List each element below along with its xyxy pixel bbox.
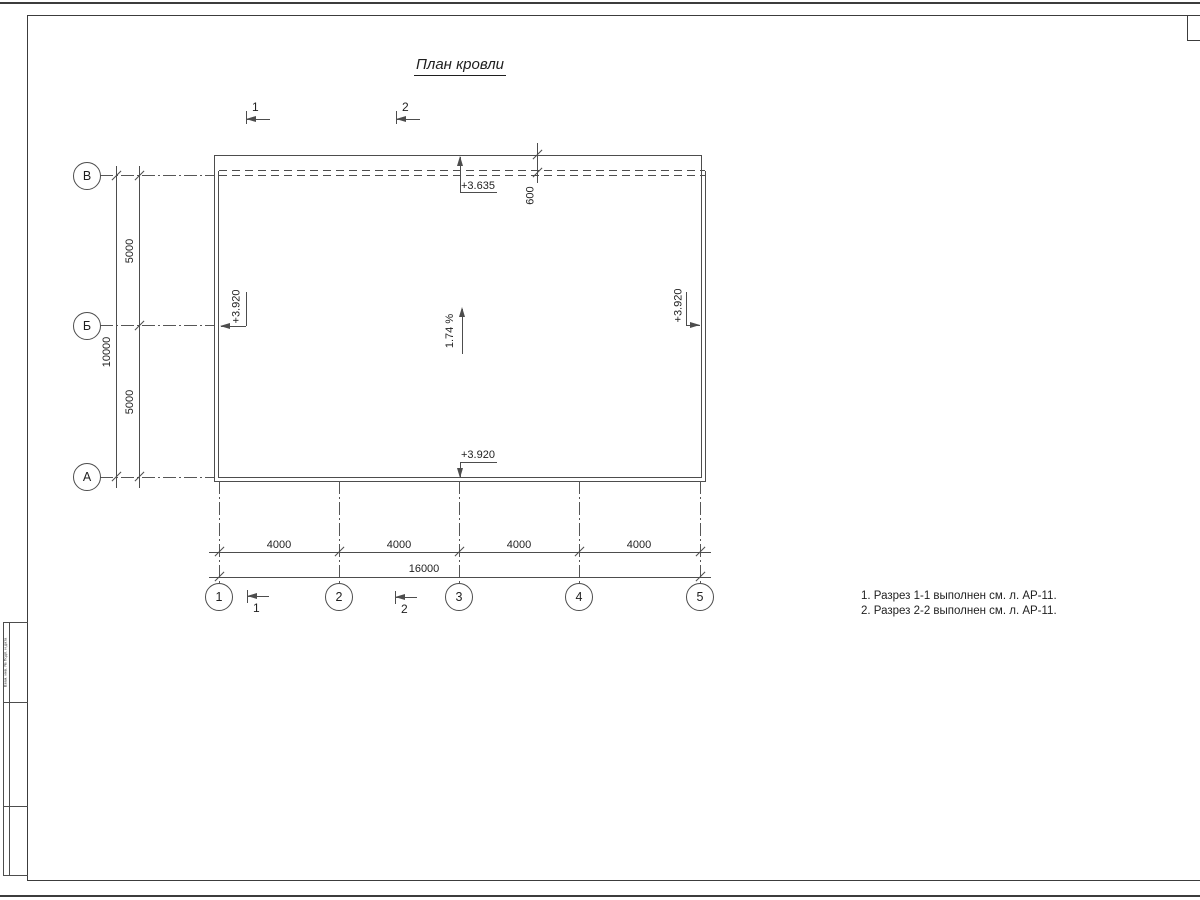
dim-text-4000-1: 4000	[259, 539, 299, 551]
stamp-side-label: Взам. инв. № Подп. и дата	[3, 623, 10, 703]
dim-text-16000: 16000	[401, 563, 447, 575]
dim-text-4000-3: 4000	[499, 539, 539, 551]
elevation-top-shelf	[460, 192, 497, 193]
wall-line-right	[705, 171, 706, 482]
axis-line-5	[700, 481, 701, 584]
section-mark-top-1-label: 1	[252, 100, 259, 114]
section-mark-bottom-1-label: 1	[253, 601, 260, 615]
dim-line-left-total	[116, 166, 117, 488]
elevation-top-value: +3.635	[461, 180, 495, 192]
stamp-divider-4	[3, 875, 28, 876]
note-line-1: 1. Разрез 1-1 выполнен см. л. АР-11.	[861, 589, 1057, 604]
axis-bubble-3: 3	[445, 583, 473, 611]
arrow-left-icon	[246, 116, 256, 122]
stamp-divider-3	[3, 806, 28, 807]
dim-text-4000-2: 4000	[379, 539, 419, 551]
roof-edge-bottom-outer	[214, 481, 706, 482]
dim-line-bottom-segments	[209, 552, 711, 553]
axis-bubble-2: 2	[325, 583, 353, 611]
hidden-wall-line-2	[219, 175, 705, 176]
roof-edge-left	[214, 155, 215, 482]
axis-bubble-5: 5	[686, 583, 714, 611]
arrow-left-icon	[220, 323, 230, 329]
slope-label: 1.74 %	[444, 309, 456, 353]
notes-block: 1. Разрез 1-1 выполнен см. л. АР-11. 2. …	[861, 589, 1057, 619]
dim-line-left-segments	[139, 166, 140, 488]
wall-line-left	[218, 171, 219, 478]
section-mark-top-2-label: 2	[402, 100, 409, 114]
elevation-right-shelf	[686, 292, 687, 325]
hidden-wall-line-1	[219, 170, 705, 171]
frame-left	[27, 15, 28, 881]
axis-bubble-a: А	[73, 463, 101, 491]
elevation-left-shelf	[246, 292, 247, 326]
axis-bubble-b: Б	[73, 312, 101, 340]
axis-line-3	[459, 481, 460, 584]
paper-top-edge	[0, 2, 1200, 4]
axis-bubble-1: 1	[205, 583, 233, 611]
corner-box-left	[1187, 15, 1188, 41]
dim-line-bottom-total	[209, 577, 711, 578]
dim-text-600: 600	[525, 183, 536, 209]
section-mark-bottom-2-label: 2	[401, 602, 408, 616]
frame-bottom	[27, 880, 1200, 881]
arrow-left-icon	[396, 116, 406, 122]
dim-text-10000: 10000	[101, 332, 113, 372]
elevation-bottom-shelf	[460, 462, 497, 463]
drawing-sheet: Взам. инв. № Подп. и дата План кровли 50…	[0, 0, 1200, 900]
axis-line-1	[219, 481, 220, 584]
elevation-right-value: +3.920	[673, 287, 684, 325]
arrow-down-icon	[457, 468, 463, 478]
arrow-up-icon	[457, 156, 463, 166]
roof-edge-right	[701, 155, 702, 478]
drawing-title: План кровли	[390, 56, 530, 73]
arrow-left-icon	[395, 594, 405, 600]
note-line-2: 2. Разрез 2-2 выполнен см. л. АР-11.	[861, 604, 1057, 619]
dim-text-4000-4: 4000	[619, 539, 659, 551]
axis-line-4	[579, 481, 580, 584]
paper-bottom-edge	[0, 895, 1200, 897]
dim-line-overhang	[537, 143, 538, 183]
arrow-up-icon	[459, 307, 465, 317]
axis-line-a	[100, 477, 214, 478]
frame-top	[27, 15, 1200, 16]
axis-line-b	[100, 325, 214, 326]
corner-box-bottom	[1187, 40, 1200, 41]
elevation-left-value: +3.920	[231, 288, 242, 326]
axis-bubble-4: 4	[565, 583, 593, 611]
axis-bubble-v: В	[73, 162, 101, 190]
arrow-left-icon	[247, 593, 257, 599]
elevation-bottom-value: +3.920	[461, 449, 495, 461]
axis-line-2	[339, 481, 340, 584]
arrow-right-icon	[690, 322, 700, 328]
dim-text-5000-upper: 5000	[124, 234, 136, 268]
dim-text-5000-lower: 5000	[124, 385, 136, 419]
